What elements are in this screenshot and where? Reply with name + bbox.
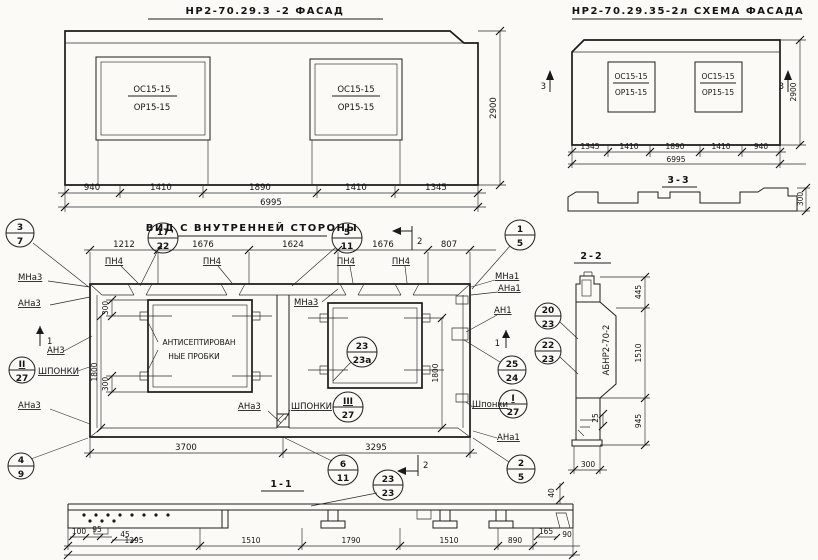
callout-bottom: 23 bbox=[542, 320, 555, 330]
dim-3295: 3295 bbox=[365, 443, 387, 453]
dim-1890: 1890 bbox=[249, 183, 271, 193]
label-mna3: МНа3 bbox=[18, 273, 42, 283]
schema-title: НР2-70.29.35-2л СХЕМА ФАСАДА bbox=[572, 6, 805, 17]
dim-1510: 1510 bbox=[439, 536, 458, 545]
callout-1-5: 15 bbox=[505, 220, 535, 250]
callout-22-23: 2223 bbox=[535, 338, 561, 365]
section-2-2-title: 2-2 bbox=[580, 251, 603, 262]
callout-top: 1 bbox=[517, 225, 523, 235]
cut-number: 1 bbox=[495, 339, 500, 349]
callout-bottom: 27 bbox=[507, 408, 520, 418]
label-shponki-left: ШПОНКИ bbox=[38, 367, 79, 377]
pn4-label: ПН4 bbox=[105, 257, 123, 267]
callout-bottom: 24 bbox=[506, 374, 519, 384]
label-mna3: МНа3 bbox=[294, 298, 318, 308]
dim-1410: 1410 bbox=[345, 183, 367, 193]
callout-bottom: 27 bbox=[342, 411, 355, 421]
dim-thickness: 300 bbox=[796, 192, 805, 207]
label-ana1: АНа1 bbox=[498, 284, 521, 294]
callout-top: 3 bbox=[17, 223, 23, 233]
cut-number: 3 bbox=[779, 82, 784, 92]
dim-1212: 1212 bbox=[113, 240, 135, 250]
dim-945: 945 bbox=[634, 414, 643, 429]
callout-20-23: 2023 bbox=[535, 303, 561, 330]
drawing-sheet: НР2-70.29.3 -2 ФАСАД ОС15-15 ОР15-15 ОС1… bbox=[0, 0, 818, 560]
callout-top: 25 bbox=[506, 360, 519, 370]
dim-165: 165 bbox=[539, 527, 554, 536]
callout-top: 23 bbox=[382, 475, 395, 485]
facade-title: НР2-70.29.3 -2 ФАСАД bbox=[186, 6, 345, 17]
dim-1624: 1624 bbox=[282, 240, 304, 250]
callout-III-27: III27 bbox=[333, 392, 363, 422]
label-shponki-mid: ШПОНКИ bbox=[291, 402, 332, 412]
dim-25: 25 bbox=[591, 413, 600, 423]
callout-25-24: 2524 bbox=[498, 356, 526, 384]
callout-2-5: 25 bbox=[507, 455, 535, 483]
label-an3: АН3 bbox=[47, 346, 65, 356]
callout-3-7: 37 bbox=[6, 219, 34, 247]
window-mark-bottom: ОР15-15 bbox=[134, 103, 171, 113]
dim-90: 90 bbox=[562, 530, 572, 539]
dim-940: 940 bbox=[754, 142, 769, 151]
callout-II-27: II27 bbox=[9, 357, 35, 384]
callout-bottom: 7 bbox=[17, 237, 23, 247]
section-3-3-title: 3-3 bbox=[667, 175, 690, 186]
section-1-1-title: 1-1 bbox=[270, 479, 293, 490]
callout-bottom: 5 bbox=[518, 473, 524, 483]
pn4-label: ПН4 bbox=[337, 257, 355, 267]
dim-1800: 1800 bbox=[90, 362, 99, 381]
inner-view-title: ВИД С ВНУТРЕННЕЙ СТОРОНЫ bbox=[146, 221, 359, 234]
label-mna1: МНа1 bbox=[495, 272, 519, 282]
callout-bottom: 9 bbox=[18, 470, 24, 480]
cut-number: 2 bbox=[423, 461, 428, 471]
callout-17-22: 1722 bbox=[148, 223, 178, 253]
callout-top: III bbox=[343, 397, 353, 407]
dim-1410: 1410 bbox=[711, 142, 730, 151]
dim-total: 6995 bbox=[666, 155, 685, 164]
callout-5-11: 511 bbox=[332, 223, 362, 253]
dim-1345: 1345 bbox=[425, 183, 447, 193]
dim-890: 890 bbox=[508, 536, 523, 545]
cut-number: 3 bbox=[541, 82, 546, 92]
panel-drawing-canvas: НР2-70.29.3 -2 ФАСАД ОС15-15 ОР15-15 ОС1… bbox=[0, 0, 818, 560]
dim-445: 445 bbox=[634, 285, 643, 300]
callout-6-11: 611 bbox=[328, 455, 358, 485]
pn4-label: ПН4 bbox=[392, 257, 410, 267]
dim-300: 300 bbox=[581, 460, 596, 469]
callout-top: 23 bbox=[356, 342, 369, 352]
window-mark-bottom: ОР15-15 bbox=[338, 103, 375, 113]
dim-1410: 1410 bbox=[619, 142, 638, 151]
callout-23-23: 2323 bbox=[373, 470, 403, 500]
label-an1: АН1 bbox=[494, 306, 512, 316]
callout-top: 20 bbox=[542, 306, 555, 316]
dim-1510: 1510 bbox=[241, 536, 260, 545]
dim-1676: 1676 bbox=[192, 240, 214, 250]
label-ana1: АНа1 bbox=[497, 433, 520, 443]
dim-100: 100 bbox=[72, 527, 87, 536]
dim-1800: 1800 bbox=[431, 363, 440, 382]
callout-top: 17 bbox=[157, 228, 170, 238]
callout-top: I bbox=[511, 394, 514, 404]
window-mark-bottom: ОР15-15 bbox=[615, 88, 647, 97]
pn4-label: ПН4 bbox=[203, 257, 221, 267]
dim-40: 40 bbox=[547, 488, 556, 498]
window-mark-bottom: ОР15-15 bbox=[702, 88, 734, 97]
dim-1510: 1510 bbox=[634, 343, 643, 362]
callout-bottom: 23а bbox=[353, 356, 372, 366]
dim-1676: 1676 bbox=[372, 240, 394, 250]
callout-top: 5 bbox=[344, 228, 350, 238]
callout-top: 4 bbox=[18, 456, 24, 466]
dim-300: 300 bbox=[101, 301, 110, 316]
window-mark-top: ОС15-15 bbox=[337, 85, 374, 95]
dim-1890: 1890 bbox=[665, 142, 684, 151]
dim-3700: 3700 bbox=[175, 443, 197, 453]
dim-1345: 1345 bbox=[580, 142, 599, 151]
dim-807: 807 bbox=[441, 240, 457, 250]
window-mark-top: ОС15-15 bbox=[702, 72, 735, 81]
callout-bottom: 22 bbox=[157, 242, 170, 252]
callout-bottom: 11 bbox=[341, 242, 354, 252]
callout-top: 2 bbox=[518, 459, 524, 469]
dim-height: 2900 bbox=[789, 82, 798, 101]
callout-top: II bbox=[19, 360, 26, 370]
label-ana3: АНа3 bbox=[18, 401, 41, 411]
label-shponki-right: Шпонки bbox=[472, 400, 508, 410]
window-mark-top: ОС15-15 bbox=[615, 72, 648, 81]
callout-top: 6 bbox=[340, 460, 346, 470]
dim-1790: 1790 bbox=[341, 536, 360, 545]
dim-300: 300 bbox=[101, 377, 110, 392]
callout-bottom: 23 bbox=[542, 355, 555, 365]
label-ana3: АНа3 bbox=[18, 299, 41, 309]
cut-number: 1 bbox=[47, 337, 52, 347]
callout-bottom: 5 bbox=[517, 239, 523, 249]
plug-note-line2: НЫЕ ПРОБКИ bbox=[168, 352, 220, 361]
label-ana3: АНа3 bbox=[238, 402, 261, 412]
callout-4-9: 49 bbox=[8, 453, 34, 480]
callout-23-23a: 2323а bbox=[347, 337, 377, 367]
callout-bottom: 27 bbox=[16, 374, 29, 384]
panel-mark-label: АБНР2-70-2 bbox=[602, 325, 612, 376]
plug-note-line1: АНТИСЕПТИРОВАН bbox=[162, 338, 235, 347]
dim-940: 940 bbox=[84, 183, 100, 193]
cut-number: 2 bbox=[417, 237, 422, 247]
window-mark-top: ОС15-15 bbox=[133, 85, 170, 95]
dim-total: 6995 bbox=[260, 198, 282, 208]
dim-1295: 1295 bbox=[124, 536, 143, 545]
callout-bottom: 23 bbox=[382, 489, 395, 499]
callout-top: 22 bbox=[542, 341, 555, 351]
dim-height: 2900 bbox=[489, 97, 499, 119]
callout-I-27: I27 bbox=[499, 390, 527, 418]
callout-bottom: 11 bbox=[337, 474, 350, 484]
dim-1410: 1410 bbox=[150, 183, 172, 193]
dim-95: 95 bbox=[92, 525, 102, 534]
